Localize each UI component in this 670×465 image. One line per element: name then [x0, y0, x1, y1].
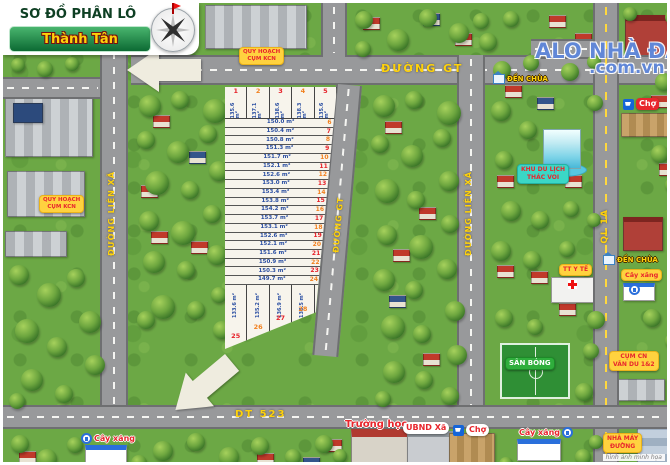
plot-row: 151.6 m²21	[225, 250, 337, 259]
pagoda-icon	[603, 255, 615, 265]
plot-row: 151.7 m²10	[225, 154, 337, 163]
house-icon	[393, 249, 410, 262]
tree-icon	[15, 319, 39, 343]
tree-icon	[37, 283, 61, 307]
label-quy-hoach-kcn-top: QUY HOẠCH CỤM KCN	[239, 47, 284, 65]
red-cross-icon	[568, 280, 577, 289]
project-name: Thành Tân	[42, 32, 118, 47]
tree-icon	[433, 129, 451, 147]
label-nha-may-duong: NHÀ MÁY ĐƯỜNG	[603, 433, 642, 453]
label-ubnd-xa: UBND Xã	[403, 422, 449, 434]
tree-icon	[139, 95, 161, 117]
label-cum-cn: CỤM CN VÂN DU 1&2	[609, 351, 659, 371]
road-label-ql1a: QL 1A	[600, 209, 610, 244]
tree-icon	[373, 269, 395, 291]
tree-icon	[371, 135, 389, 153]
plot-row: 150.4 m²7	[225, 128, 337, 137]
tree-icon	[415, 371, 433, 389]
tree-icon	[523, 251, 541, 269]
factory-building	[205, 5, 307, 49]
road-stub-top-left	[3, 77, 102, 99]
plot-row: 152.1 m²11	[225, 163, 337, 172]
tree-icon	[377, 225, 397, 245]
tree-icon	[285, 449, 301, 465]
tree-icon	[187, 301, 205, 319]
label-san-bong: SÂN BÓNG	[505, 357, 555, 370]
tree-icon	[445, 301, 465, 321]
tree-icon	[405, 91, 423, 109]
tree-icon	[85, 355, 105, 375]
plot-row: 150.8 m²8	[225, 136, 337, 145]
tree-icon	[439, 171, 459, 191]
plot-cell: 1135.6 m²	[225, 87, 247, 118]
tree-icon	[503, 11, 519, 27]
plot-rows: 150.0 m²6150.4 m²7150.8 m²8151.3 m²9151.…	[225, 119, 337, 285]
tree-icon	[167, 141, 189, 163]
tree-icon	[131, 455, 147, 465]
tree-icon	[583, 343, 599, 359]
tree-icon	[203, 205, 221, 223]
house-icon	[549, 15, 566, 28]
tree-icon	[651, 145, 669, 163]
label-cay-xang-bottom-mid: Cây xăng	[519, 427, 573, 438]
label-khu-du-lich: KHU DU LỊCH THÁC VOI	[517, 164, 569, 184]
plot-row: 153.0 m²13	[225, 180, 337, 189]
house-icon	[189, 151, 206, 164]
gas-station-building	[85, 445, 127, 463]
tree-icon	[199, 125, 217, 143]
tree-icon	[437, 259, 457, 279]
road-label-duong-gt: ĐƯỜNG GT	[381, 62, 463, 75]
tree-icon	[479, 33, 497, 51]
house-icon	[659, 163, 670, 176]
plot-row: 153.4 m²14	[225, 189, 337, 198]
tree-icon	[151, 295, 175, 319]
tree-icon	[495, 309, 513, 327]
plot-row: 152.6 m²12	[225, 171, 337, 180]
tree-icon	[373, 95, 395, 117]
tree-icon	[171, 91, 189, 109]
sports-field	[500, 343, 570, 399]
tree-icon	[315, 435, 333, 453]
solar-panel	[13, 103, 43, 123]
tree-icon	[383, 361, 405, 383]
plot-cell: 2137.1 m²	[247, 87, 269, 118]
house-icon	[537, 97, 554, 110]
tree-icon	[67, 269, 85, 287]
tree-icon	[211, 287, 227, 303]
road-dt523	[3, 405, 670, 429]
tree-icon	[491, 101, 511, 121]
tree-icon	[491, 241, 511, 261]
plot-row: 152.6 m²19	[225, 233, 337, 242]
house-icon	[385, 121, 402, 134]
tree-icon	[203, 99, 227, 123]
watermark-domain: .com.vn	[589, 58, 665, 78]
cart-icon	[453, 425, 464, 436]
road-label-dt523: DT 523	[235, 409, 286, 420]
temple-building	[623, 217, 663, 251]
tree-icon	[55, 385, 73, 403]
tree-icon	[575, 449, 591, 465]
plot-row: 152.1 m²20	[225, 241, 337, 250]
tree-icon	[65, 57, 79, 71]
plot-cell: 3138.6 m²	[270, 87, 292, 118]
label-cay-xang-right: Cây xăng	[621, 269, 662, 281]
tree-icon	[47, 337, 67, 357]
caption-text: hình ảnh minh họa	[603, 454, 665, 461]
market-building	[621, 113, 669, 137]
tree-icon	[11, 58, 25, 72]
house-icon	[497, 175, 514, 188]
tree-icon	[419, 9, 437, 27]
tree-icon	[623, 7, 637, 21]
tree-icon	[589, 435, 603, 449]
road-center-top	[321, 3, 347, 57]
tree-icon	[177, 261, 195, 279]
tree-icon	[171, 221, 195, 245]
tree-icon	[437, 101, 461, 125]
tree-icon	[563, 201, 579, 217]
tree-icon	[587, 95, 603, 111]
plot-cell: 133.6 m²25	[225, 285, 247, 349]
gas-station-building	[517, 439, 561, 461]
tree-icon	[559, 241, 575, 257]
market-building	[449, 433, 495, 463]
tree-icon	[409, 235, 433, 259]
label-tt-y-te: TT Y TẾ	[559, 264, 592, 276]
tree-icon	[449, 23, 469, 43]
tree-icon	[21, 369, 43, 391]
tree-icon	[37, 61, 53, 77]
house-icon	[531, 271, 548, 284]
compass-rose-icon	[151, 8, 195, 52]
tree-icon	[401, 145, 423, 167]
factory-building	[5, 231, 67, 257]
tree-icon	[187, 433, 205, 451]
tree-icon	[181, 181, 199, 199]
gas-pump-icon	[562, 427, 573, 438]
plot-row: 151.3 m²9	[225, 145, 337, 154]
plot-top-section: 1135.6 m²2137.1 m²3138.6 m²4138.3 m²5135…	[225, 87, 337, 119]
tree-icon	[441, 387, 459, 405]
plot-row: 153.1 m²18	[225, 224, 337, 233]
house-icon	[419, 207, 436, 220]
page-title: SƠ ĐỒ PHÂN LÔ	[7, 7, 149, 22]
tree-icon	[441, 215, 459, 233]
tree-icon	[519, 121, 537, 139]
road-label-lien-xa-right: ĐƯỜNG LIÊN XÃ	[464, 171, 473, 256]
label-den-chua-right: ĐỀN CHÙA	[603, 255, 658, 265]
house-icon	[389, 295, 406, 308]
plot-row: 150.0 m²6	[225, 119, 337, 128]
road-label-duong-gt-v: ĐƯỜNG GT	[331, 196, 345, 253]
tree-icon	[219, 447, 239, 465]
tree-icon	[501, 201, 521, 221]
plot-row: 154.2 m²16	[225, 206, 337, 215]
tree-icon	[139, 211, 159, 231]
tree-icon	[561, 63, 579, 81]
tree-icon	[575, 383, 593, 401]
tree-icon	[643, 309, 661, 327]
cart-icon	[623, 99, 634, 110]
project-name-banner: Thành Tân	[9, 26, 151, 52]
tree-icon	[79, 311, 101, 333]
house-icon	[505, 85, 522, 98]
tree-icon	[413, 325, 431, 343]
gas-pump-icon	[629, 284, 640, 295]
tree-icon	[251, 437, 269, 455]
tree-icon	[145, 171, 169, 195]
tree-icon	[355, 11, 373, 29]
tree-icon	[587, 213, 601, 227]
tree-icon	[9, 393, 25, 409]
house-icon	[19, 451, 36, 464]
tree-icon	[531, 211, 549, 229]
tree-icon	[143, 251, 165, 273]
label-cho-top: Chợ	[623, 98, 659, 110]
tree-icon	[447, 345, 467, 365]
map-canvas: ĐƯỜNG GT ĐƯỜNG GT ĐƯỜNG LIÊN XÃ ĐƯỜNG LI…	[0, 0, 670, 465]
road-label-lien-xa-left: ĐƯỜNG LIÊN XÃ	[107, 171, 116, 256]
plot-cell: 5135.6 m²	[315, 87, 337, 118]
house-icon	[559, 303, 576, 316]
tree-icon	[407, 191, 425, 209]
plot-row: 153.7 m²17	[225, 215, 337, 224]
tree-icon	[405, 281, 423, 299]
plot-cell: 4138.3 m²	[292, 87, 314, 118]
gas-pump-icon	[81, 433, 92, 444]
tree-icon	[473, 13, 489, 29]
house-icon	[153, 115, 170, 128]
label-quy-hoach-kcn-left: QUY HOẠCH CỤM KCN	[39, 195, 84, 213]
tree-icon	[387, 29, 409, 51]
house-icon	[191, 241, 208, 254]
tree-icon	[153, 441, 173, 461]
tree-icon	[527, 319, 543, 335]
tree-icon	[37, 449, 57, 465]
tree-icon	[11, 435, 29, 453]
tree-icon	[355, 41, 371, 57]
label-truong-hoc: Trường học	[345, 419, 407, 430]
tree-icon	[9, 265, 29, 285]
waterfall	[543, 129, 581, 169]
tree-icon	[381, 315, 405, 339]
tree-icon	[587, 311, 605, 329]
label-den-chua-top: ĐỀN CHÙA	[493, 74, 548, 84]
label-cay-xang-bottom-left: Cây xăng	[81, 433, 135, 444]
tree-icon	[375, 179, 399, 203]
house-icon	[497, 265, 514, 278]
house-icon	[151, 231, 168, 244]
tree-icon	[333, 449, 347, 463]
house-icon	[303, 457, 320, 465]
tree-icon	[499, 457, 513, 465]
house-icon	[423, 353, 440, 366]
tree-icon	[207, 245, 227, 265]
tree-icon	[495, 151, 513, 169]
pagoda-icon	[493, 74, 505, 84]
label-cho-bottom: Chợ	[453, 424, 489, 436]
tree-icon	[137, 131, 155, 149]
tree-icon	[375, 391, 391, 407]
